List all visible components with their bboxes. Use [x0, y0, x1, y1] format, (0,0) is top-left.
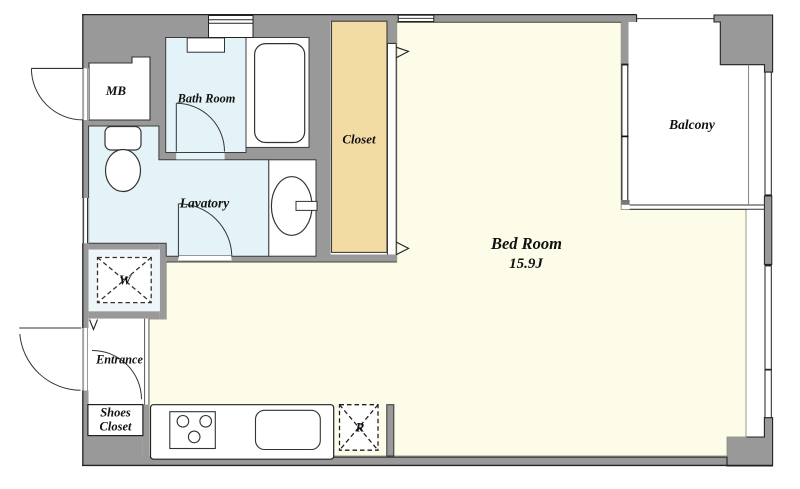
- svg-text:MB: MB: [105, 83, 127, 98]
- svg-text:Bed Room: Bed Room: [490, 234, 562, 253]
- svg-text:W: W: [119, 273, 132, 288]
- svg-text:Shoes: Shoes: [100, 406, 131, 420]
- svg-text:Closet: Closet: [342, 132, 376, 147]
- svg-text:Lavatory: Lavatory: [179, 196, 230, 211]
- svg-text:R: R: [355, 419, 365, 434]
- svg-text:Entrance: Entrance: [95, 353, 143, 367]
- svg-text:15.9J: 15.9J: [509, 256, 543, 272]
- svg-text:Closet: Closet: [100, 420, 132, 434]
- svg-text:Balcony: Balcony: [668, 117, 716, 132]
- svg-text:Bath Room: Bath Room: [177, 92, 236, 106]
